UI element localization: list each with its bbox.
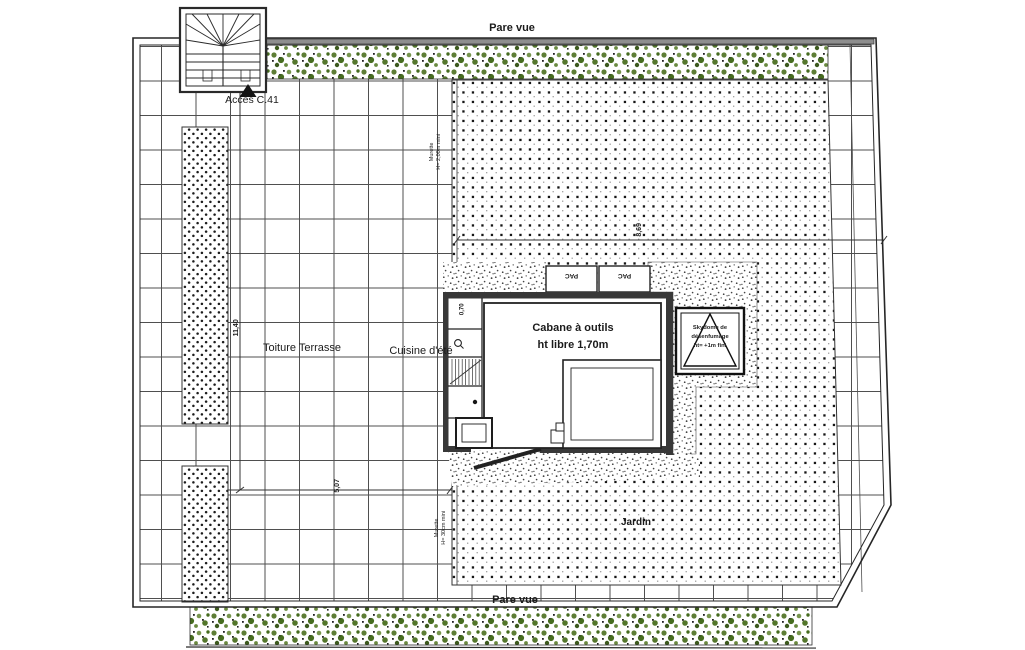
skydome-label-line2: désenfumage bbox=[680, 333, 740, 342]
spiral-staircase bbox=[180, 8, 266, 92]
wall-right bbox=[666, 292, 673, 455]
garden-label: Jardin bbox=[596, 517, 676, 528]
step-notch-outer bbox=[551, 430, 564, 443]
step-notch-inner bbox=[556, 423, 564, 431]
terrace-label: Toiture Terrasse bbox=[222, 342, 382, 354]
bottom-vegetation-strip bbox=[186, 607, 816, 648]
point-marker bbox=[473, 400, 477, 404]
skydome-label-line3: ht= +1m fini bbox=[680, 342, 740, 351]
left-planter-strips bbox=[182, 127, 228, 602]
cabane-inner-room bbox=[563, 360, 661, 448]
tool-shed-label-line1: Cabane à outils bbox=[493, 320, 653, 337]
access-label: Accès C.41 bbox=[192, 95, 312, 107]
pac-left-label: PAC bbox=[551, 272, 592, 279]
tool-shed-label: Cabane à outils ht libre 1,70m bbox=[493, 320, 653, 353]
wall-note-bottom-line1: Murette bbox=[434, 498, 441, 558]
pare-vue-fence-top bbox=[266, 39, 874, 44]
tool-shed-label-line2: ht libre 1,70m bbox=[493, 337, 653, 354]
wall-note-bottom-line2: H= 30cm mini bbox=[441, 498, 448, 558]
pac-right-label: PAC bbox=[604, 272, 645, 279]
skydome-label-line1: Skydome de bbox=[680, 324, 740, 333]
wall-note-top-line2: H= 2,00m mini bbox=[436, 122, 443, 182]
top-vegetation-strip bbox=[267, 45, 828, 79]
wall-left bbox=[443, 292, 449, 452]
wall-note-top-line1: Murette bbox=[429, 122, 436, 182]
shaft bbox=[456, 418, 492, 448]
wall-note-bottom: Murette H= 30cm mini bbox=[434, 498, 448, 558]
pare-vue-bottom-label: Pare vue bbox=[455, 594, 575, 606]
pare-vue-top-label: Pare vue bbox=[452, 22, 572, 34]
summer-kitchen-label: Cuisine d'été bbox=[378, 345, 464, 357]
wall-top bbox=[443, 292, 673, 299]
roof-terrace-plan: Pare vue Accès C.41 Toiture Terrasse Cui… bbox=[0, 0, 1025, 650]
skydome-label: Skydome de désenfumage ht= +1m fini bbox=[680, 324, 740, 351]
dimension-0-70: 0,70 bbox=[460, 297, 467, 321]
dimension-11-40: 11,40 bbox=[233, 313, 241, 343]
wall-note-top: Murette H= 2,00m mini bbox=[429, 122, 443, 182]
dimension-8-69: 8,69 bbox=[636, 215, 644, 245]
dimension-5-07: 5,07 bbox=[334, 471, 342, 501]
